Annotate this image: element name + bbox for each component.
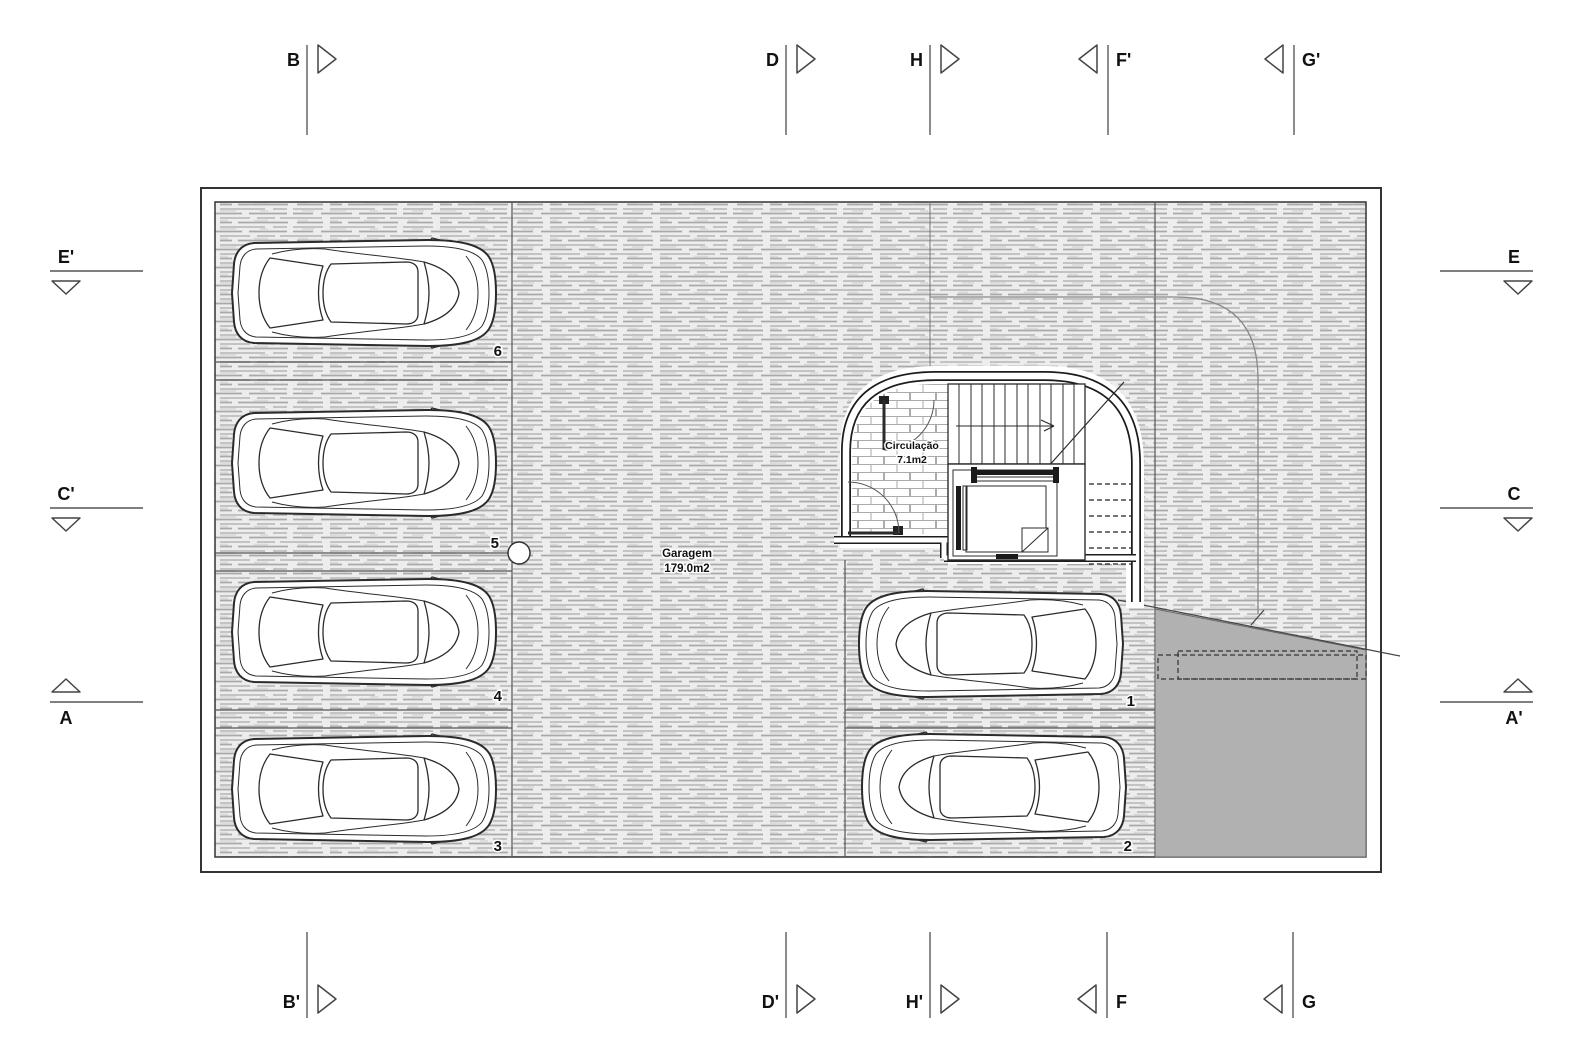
grid-marker-f-prime: F'	[1079, 45, 1131, 135]
car-5	[232, 408, 496, 518]
grid-label: G'	[1302, 50, 1320, 70]
grid-marker-d: D	[766, 45, 815, 135]
car-4	[232, 577, 496, 687]
stall-number-2: 2	[1124, 838, 1132, 855]
grid-label: B'	[283, 992, 300, 1012]
grid-marker-e-prime: E'	[50, 247, 143, 294]
grid-marker-h: H	[910, 45, 959, 135]
car-6	[232, 238, 496, 348]
grid-marker-d-prime: D'	[762, 932, 815, 1018]
elevator-door-bar	[976, 470, 1054, 475]
section-markers-right: E C A'	[1440, 247, 1533, 728]
stall-number-3: 3	[494, 838, 502, 855]
grid-label: E	[1508, 247, 1520, 267]
elevator	[948, 464, 1085, 560]
grid-label: C'	[57, 484, 74, 504]
grid-label: A'	[1505, 708, 1522, 728]
grid-label: D'	[762, 992, 779, 1012]
section-arrow-icon	[52, 281, 80, 294]
section-arrow-icon	[797, 45, 815, 73]
section-arrow-icon	[941, 45, 959, 73]
section-arrow-icon	[941, 985, 959, 1013]
grid-marker-b-prime: B'	[283, 932, 336, 1018]
section-markers-bottom: B' D' H' F G	[283, 932, 1316, 1018]
grid-label: H	[910, 50, 923, 70]
room-area-circulacao: 7.1m2	[897, 454, 927, 466]
grid-label: F'	[1116, 50, 1131, 70]
grid-marker-b: B	[287, 45, 336, 135]
section-arrow-icon	[797, 985, 815, 1013]
floor-plan-canvas: Circulação 7.1m2 Garagem 179.0m2 6 5 4 3…	[0, 0, 1572, 1058]
room-area-garagem: 179.0m2	[664, 563, 709, 575]
elevator-door-bracket	[1053, 467, 1059, 483]
grid-label: A	[60, 708, 73, 728]
section-arrow-icon	[1079, 45, 1097, 73]
elevator-guide-rail	[956, 486, 961, 550]
grid-marker-g-prime: G'	[1265, 45, 1320, 135]
ramp-gray-fill	[1155, 609, 1366, 857]
section-arrow-icon	[1078, 985, 1096, 1013]
grid-label: C	[1508, 484, 1521, 504]
section-arrow-icon	[318, 985, 336, 1013]
grid-marker-c-prime: C'	[50, 484, 143, 531]
grid-marker-a-prime: A'	[1440, 679, 1533, 728]
stall-number-6: 6	[494, 343, 502, 360]
elevator-door-bracket	[971, 467, 977, 483]
grid-label: H'	[906, 992, 923, 1012]
room-label-garagem: Garagem	[662, 548, 712, 560]
floor-plan-drawing: Circulação 7.1m2 Garagem 179.0m2 6 5 4 3…	[0, 0, 1572, 1058]
stall-number-4: 4	[494, 688, 503, 705]
grid-marker-c: C	[1440, 484, 1533, 531]
section-markers-left: E' C' A	[50, 247, 143, 728]
section-arrow-icon	[52, 679, 80, 692]
elevator-sill	[996, 554, 1018, 559]
grid-marker-e: E	[1440, 247, 1533, 294]
grid-label: G	[1302, 992, 1316, 1012]
grid-label: D	[766, 50, 779, 70]
section-markers-top: B D H F' G'	[287, 45, 1320, 135]
grid-marker-g: G	[1264, 932, 1316, 1018]
section-arrow-icon	[1264, 985, 1282, 1013]
car-3	[232, 734, 496, 844]
grid-marker-a: A	[50, 679, 143, 728]
grid-marker-h-prime: H'	[906, 932, 959, 1018]
room-label-circulacao: Circulação	[885, 440, 939, 452]
car-2	[862, 732, 1126, 842]
structural-column	[508, 542, 530, 564]
section-arrow-icon	[318, 45, 336, 73]
section-arrow-icon	[1265, 45, 1283, 73]
car-1	[859, 589, 1123, 699]
grid-marker-f: F	[1078, 932, 1127, 1018]
stall-number-1: 1	[1127, 693, 1135, 710]
grid-label: B	[287, 50, 300, 70]
section-arrow-icon	[1504, 518, 1532, 531]
section-arrow-icon	[1504, 281, 1532, 294]
grid-label: F	[1116, 992, 1127, 1012]
grid-label: E'	[58, 247, 74, 267]
stall-number-5: 5	[491, 535, 499, 552]
section-arrow-icon	[52, 518, 80, 531]
section-arrow-icon	[1504, 679, 1532, 692]
